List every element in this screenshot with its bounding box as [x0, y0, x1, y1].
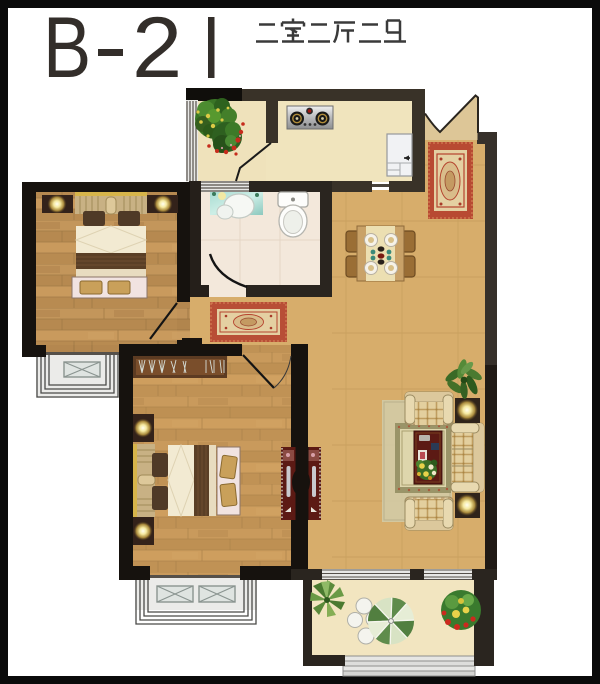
svg-text:B: B: [43, 0, 91, 95]
svg-text:2: 2: [132, 0, 182, 96]
